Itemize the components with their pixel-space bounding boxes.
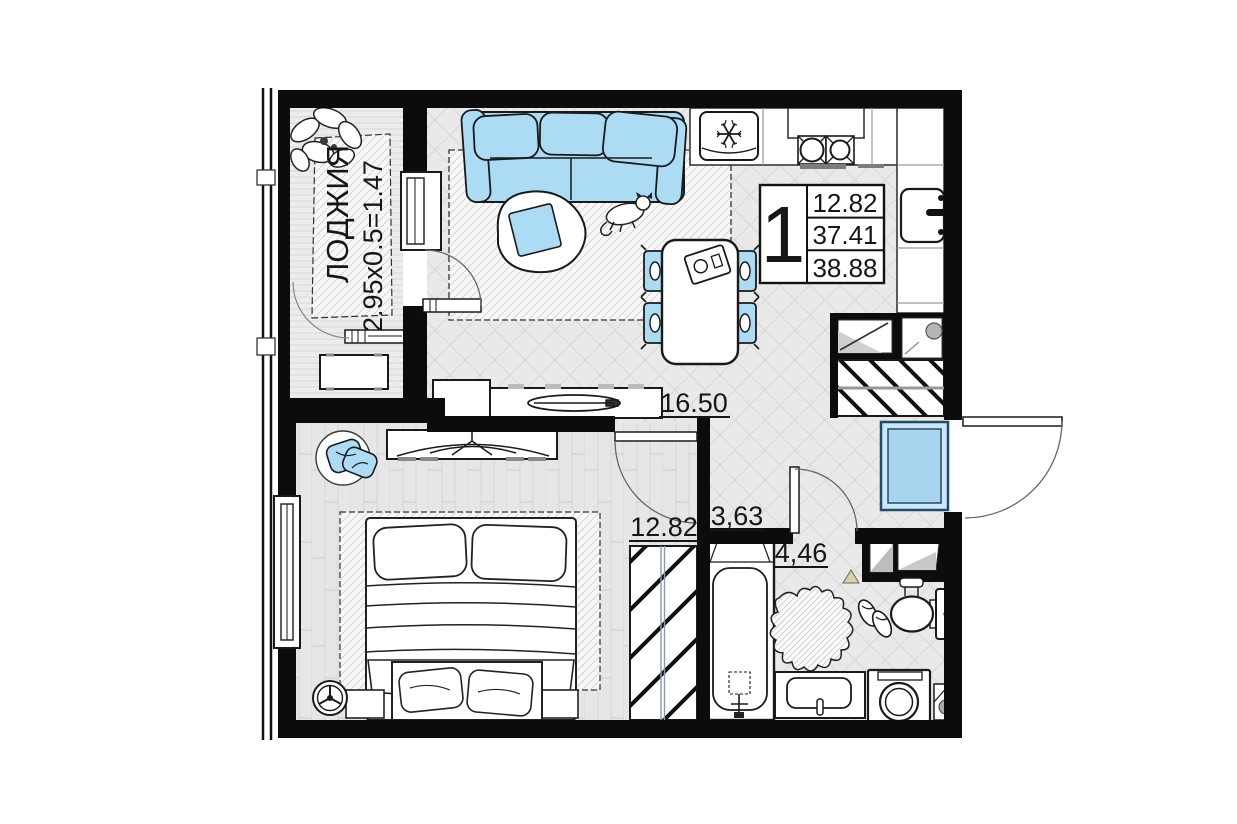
shelf-right-icon (902, 318, 942, 358)
bathtub-icon (706, 534, 774, 720)
living-window (401, 172, 441, 250)
wall-loggia-living-a (403, 108, 427, 174)
kitchen-sink-icon (901, 189, 947, 242)
fridge-icon (700, 112, 758, 160)
bedroom-window (274, 496, 300, 648)
bench-icon (320, 355, 388, 389)
room-count: 1 (761, 190, 806, 279)
wall-top (278, 90, 962, 108)
kitchen-cabinet (788, 108, 864, 138)
wall-bath-top-right (855, 528, 944, 544)
entrance-door-icon (963, 417, 1062, 518)
info-row-2: 37.41 (812, 220, 877, 250)
loggia-dims-label: 2.95x0.5=1.47 (358, 160, 388, 332)
bedroom-area-label: 12.82 (630, 512, 698, 542)
floor-plan-page: 1 12.82 37.41 38.88 (0, 0, 1237, 824)
shelf-left-icon (838, 320, 892, 353)
bathroom-area-label: 4,46 (775, 538, 828, 568)
wall-left-loggia (278, 90, 290, 400)
wall-bottom (278, 720, 962, 738)
wall-left-bedroom-b (278, 646, 296, 738)
wall-living-bedroom (427, 416, 615, 432)
wall-right-upper (944, 108, 962, 420)
loggia-glazing (263, 88, 271, 740)
pillow-icon (466, 669, 533, 716)
nightstand-icon (346, 690, 384, 718)
glazing-frame (257, 338, 275, 355)
vanity-sink-icon (775, 672, 865, 718)
info-row-3: 38.88 (812, 253, 877, 283)
clock-icon (313, 681, 347, 715)
balcony-door-opening (403, 250, 427, 306)
wall-right-lower (944, 512, 962, 738)
floor-plan: 1 12.82 37.41 38.88 (0, 0, 1237, 824)
animal-skin-rug-icon (770, 586, 853, 671)
info-table: 1 12.82 37.41 38.88 (760, 185, 884, 283)
loggia-name-label: ЛОДЖИЯ (320, 145, 355, 283)
pillow-icon (398, 667, 464, 713)
info-row-1: 12.82 (812, 188, 877, 218)
bed-icon (346, 518, 578, 720)
living-area-label: 16.50 (660, 388, 728, 418)
tray-icon (508, 203, 561, 256)
wall-loggia-living-b (403, 306, 427, 402)
washing-machine-icon (868, 670, 930, 726)
wall-loggia-bottom (278, 398, 445, 423)
wall-hall-vertical (697, 416, 710, 728)
wall-storage-left (830, 313, 838, 418)
hallway-area-label: 3,63 (711, 501, 764, 531)
glazing-frame (257, 170, 275, 185)
entrance-mat-icon (881, 422, 948, 510)
nightstand-icon (540, 690, 578, 718)
sofa-icon (461, 109, 687, 205)
tv-stand-icon (387, 430, 557, 459)
